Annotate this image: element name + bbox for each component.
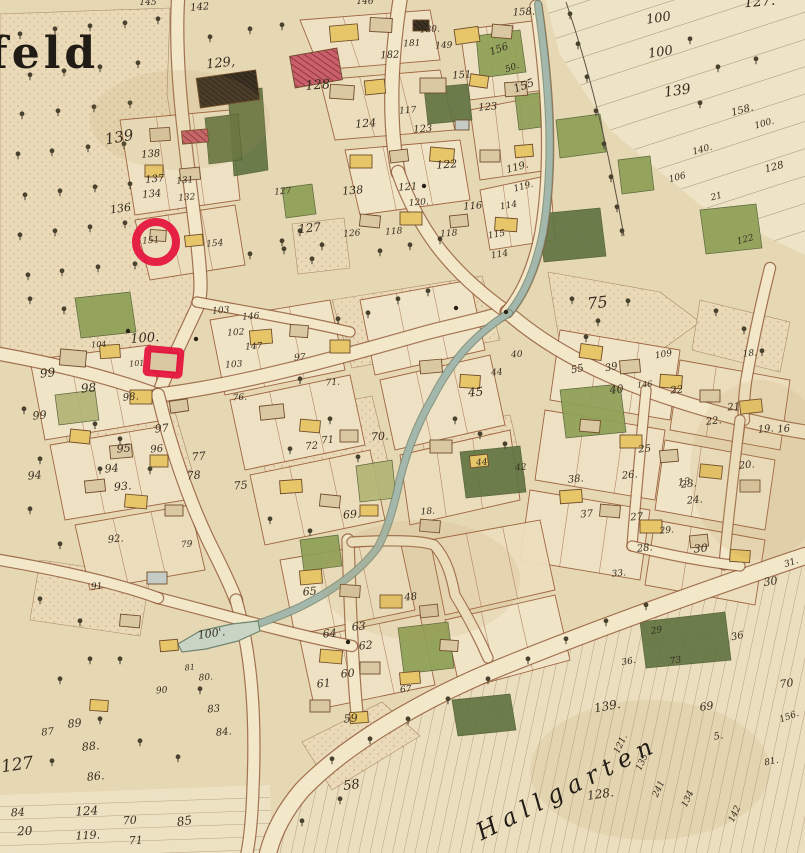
- tree-crown: [310, 256, 315, 261]
- building: [299, 569, 322, 585]
- building: [59, 349, 86, 367]
- parcel-number-label: 103: [212, 305, 230, 316]
- tree-crown: [58, 676, 63, 681]
- tree-crown: [60, 268, 65, 273]
- parcel-number-label: 118: [440, 228, 458, 239]
- building: [290, 324, 309, 337]
- tree-crown: [446, 696, 451, 701]
- tree-crown: [716, 64, 721, 69]
- tree-crown: [615, 204, 620, 209]
- tree-crown: [585, 74, 590, 79]
- parcel-number-label: 92.: [107, 533, 124, 545]
- parcel-number-label: 146: [637, 379, 653, 389]
- parcel-number-label: 123: [478, 101, 498, 113]
- building: [330, 340, 350, 353]
- parcel-number-label: 99: [32, 408, 47, 422]
- building: [455, 120, 469, 130]
- parcel-number-label: 59: [343, 711, 358, 725]
- parcel-number-label: 151: [452, 69, 472, 81]
- tree-crown: [288, 446, 293, 451]
- tree-crown: [526, 656, 531, 661]
- building: [160, 639, 179, 652]
- parcel-number-label: 71: [321, 434, 335, 446]
- tree-crown: [320, 242, 325, 247]
- tree-crown: [688, 36, 693, 41]
- tree-crown: [16, 151, 21, 156]
- garden-plot: [356, 460, 396, 502]
- paper-stain: [90, 70, 270, 170]
- parcel-number-label: 64: [322, 626, 337, 640]
- tree-crown: [138, 738, 143, 743]
- tree-crown: [298, 376, 303, 381]
- tree-crown: [453, 416, 458, 421]
- tree-crown: [644, 602, 649, 607]
- building: [579, 344, 603, 361]
- tree-crown: [148, 466, 153, 471]
- tree-crown: [88, 224, 93, 229]
- parcel-number-label: 58: [342, 777, 360, 794]
- parcel-number-label: 70: [779, 676, 795, 691]
- parcel-number-label: 182: [380, 50, 400, 62]
- parcel-number-label: 124: [75, 803, 99, 818]
- parcel-number-label: 138: [342, 183, 364, 198]
- parcel-number-label: 65: [302, 584, 317, 598]
- building: [360, 505, 378, 516]
- building: [454, 26, 480, 44]
- parcel-number-label: 122: [436, 157, 458, 171]
- parcel-number-label: 62: [358, 638, 373, 652]
- parcel-number-label: 23.: [679, 478, 697, 490]
- historic-cadastral-map: 142145146129,128139138137134136131132151…: [0, 0, 805, 853]
- tree-crown: [609, 174, 614, 179]
- parcel-number-label: 94: [27, 468, 42, 482]
- tree-crown: [564, 636, 569, 641]
- building: [389, 149, 408, 163]
- parcel-number-label: 22: [669, 384, 684, 396]
- parcel-number-label: 25: [637, 443, 652, 455]
- parcel-number-label: 69.: [343, 507, 361, 521]
- tree-crown: [330, 756, 335, 761]
- building: [515, 144, 534, 158]
- parcel-number-label: 99: [39, 365, 56, 381]
- parcel-number-label: 19.: [757, 423, 774, 435]
- boundary-dot: [504, 310, 508, 314]
- tree-crown: [198, 686, 203, 691]
- building: [400, 212, 422, 225]
- tree-crown: [26, 272, 31, 277]
- tree-crown: [208, 34, 213, 39]
- tree-crown: [570, 296, 575, 301]
- parcel-number-label: 121: [398, 181, 418, 193]
- building: [370, 17, 393, 32]
- tree-crown: [576, 41, 581, 46]
- parcel-number-label: 134: [142, 188, 162, 201]
- parcel-number-label: 98.: [122, 391, 139, 403]
- parcel-number-label: 40: [510, 350, 523, 361]
- tree-crown: [128, 181, 133, 186]
- parcel-number-label: 42: [514, 463, 527, 474]
- parcel-number-label: 26.: [620, 469, 638, 481]
- building: [120, 614, 141, 628]
- parcel-number-label: 81: [184, 663, 195, 673]
- tree-crown: [280, 238, 285, 243]
- garden-plot: [55, 390, 99, 425]
- building: [150, 455, 168, 467]
- building: [259, 404, 284, 420]
- tree-crown: [123, 220, 128, 225]
- building: [147, 572, 167, 584]
- tree-crown: [366, 310, 371, 315]
- parcel-number-label: 147: [245, 341, 263, 352]
- parcel-number-label: 28.: [635, 542, 653, 554]
- parcel-number-label: 18.: [742, 348, 757, 359]
- parcel-number-label: 80.: [198, 672, 213, 683]
- tree-crown: [328, 416, 333, 421]
- tree-crown: [86, 144, 91, 149]
- building: [330, 84, 355, 100]
- tree-crown: [96, 264, 101, 269]
- tree-crown: [248, 26, 253, 31]
- building: [420, 78, 446, 93]
- tree-crown: [620, 228, 625, 233]
- garden-plot: [452, 694, 516, 736]
- tree-crown: [602, 141, 607, 146]
- parcel-number-label: 48: [403, 591, 418, 603]
- parcel-number-label: 149: [435, 41, 453, 52]
- tree-crown: [98, 716, 103, 721]
- tree-crown: [596, 318, 601, 323]
- tree-crown: [28, 506, 33, 511]
- parcel-number-label: 117: [399, 105, 417, 116]
- tree-crown: [503, 441, 508, 446]
- parcel-number-label: 104: [91, 339, 107, 349]
- tree-crown: [23, 192, 28, 197]
- parcel-number-label: 63: [351, 619, 366, 633]
- tree-crown: [408, 242, 413, 247]
- parcel-number-label: 158.: [512, 6, 535, 18]
- boundary-dot: [454, 306, 458, 310]
- boundary-dot: [346, 640, 350, 644]
- parcel-number-label: 67: [400, 685, 413, 696]
- tree-crown: [38, 456, 43, 461]
- parcel-number-label: 146: [242, 311, 260, 322]
- tree-crown: [53, 228, 58, 233]
- tree-crown: [308, 528, 313, 533]
- parcel-number-label: 30: [763, 574, 779, 589]
- tree-crown: [604, 618, 609, 623]
- paper-stain: [320, 520, 520, 640]
- tree-crown: [18, 232, 23, 237]
- tree-crown: [300, 818, 305, 823]
- parcel-number-label: 84: [10, 806, 25, 820]
- building: [124, 494, 147, 509]
- tree-crown: [698, 100, 703, 105]
- tree-crown: [98, 466, 103, 471]
- parcel-number-label: 79: [181, 540, 194, 551]
- tree-crown: [156, 16, 161, 21]
- building: [350, 155, 372, 168]
- parcel-number-label: 124: [355, 116, 377, 131]
- building: [419, 359, 442, 374]
- tree-crown: [568, 11, 573, 16]
- building: [364, 79, 385, 95]
- parcel-number-label: 151: [142, 235, 160, 246]
- tree-crown: [248, 251, 253, 256]
- building: [319, 494, 340, 508]
- tree-crown: [50, 148, 55, 153]
- parcel-number-label: 90: [156, 686, 169, 697]
- parcel-number-label: 181: [403, 39, 421, 50]
- tree-crown: [486, 676, 491, 681]
- parcel-number-label: 98: [80, 380, 97, 396]
- building: [440, 639, 459, 651]
- parcel-number-label: 137: [145, 173, 166, 186]
- tree-crown: [282, 246, 287, 251]
- parcel-number-label: 70: [122, 814, 137, 828]
- tree-crown: [118, 656, 123, 661]
- tree-crown: [20, 111, 25, 116]
- tree-crown: [50, 758, 55, 763]
- parcel-number-label: 97: [294, 353, 306, 364]
- building: [359, 214, 380, 228]
- parcel-number-label: 72: [305, 440, 319, 452]
- parcel-number-label: 16: [777, 423, 791, 435]
- parcel-number-label: 69: [699, 699, 715, 714]
- parcel-number-label: 132: [178, 192, 196, 203]
- garden-plot: [618, 156, 654, 194]
- tree-crown: [478, 431, 483, 436]
- building: [165, 505, 183, 516]
- parcel-number-label: 91: [91, 582, 103, 593]
- tree-crown: [280, 22, 285, 27]
- parcel-number-label: 70.: [371, 429, 389, 443]
- parcel-number-label: 77: [191, 449, 206, 463]
- tree-crown: [584, 334, 589, 339]
- tree-crown: [336, 316, 341, 321]
- parcel-number-label: 138: [141, 148, 161, 161]
- tree-crown: [123, 20, 128, 25]
- parcel-number-label: 126: [343, 228, 361, 239]
- garden-plot: [700, 204, 762, 254]
- building: [319, 649, 342, 664]
- tree-crown: [28, 296, 33, 301]
- parcel-number-label: 146: [356, 0, 373, 7]
- parcel-number-label: 123: [413, 123, 433, 135]
- tree-crown: [176, 754, 181, 759]
- parcel-number-label: 75: [233, 478, 248, 492]
- parcel-number-label: 20: [16, 824, 33, 839]
- parcel-number-label: 93.: [113, 479, 132, 493]
- tree-crown: [368, 736, 373, 741]
- parcel-number-label: 128: [305, 77, 331, 94]
- building: [430, 440, 452, 453]
- building: [69, 429, 90, 444]
- parcel-number-label: 145: [139, 0, 156, 8]
- tree-crown: [78, 618, 83, 623]
- tree-crown: [594, 108, 599, 113]
- tree-crown: [406, 716, 411, 721]
- parcel-number-label: 71: [128, 834, 143, 848]
- building: [400, 671, 421, 685]
- building: [169, 399, 188, 413]
- parcel-number-label: 37: [580, 508, 594, 520]
- garden-plot: [556, 114, 606, 158]
- boundary-dot: [422, 184, 426, 188]
- tree-crown: [38, 596, 43, 601]
- parcel-number-label: 24.: [685, 494, 703, 506]
- building: [660, 449, 679, 463]
- parcel-number-label: 27: [629, 511, 644, 523]
- tree-crown: [426, 288, 431, 293]
- parcel-number-label: 40: [608, 382, 624, 396]
- tree-crown: [338, 796, 343, 801]
- building: [619, 359, 640, 374]
- building: [340, 430, 358, 442]
- parcel-number-label: 85: [176, 813, 193, 829]
- parcel-number-label: 100.: [130, 330, 160, 347]
- tree-crown: [88, 656, 93, 661]
- tree-crown: [22, 406, 27, 411]
- parcel-number-label: 96: [150, 443, 164, 455]
- building: [90, 699, 109, 711]
- building: [580, 419, 601, 433]
- tree-crown: [58, 188, 63, 193]
- building: [84, 479, 105, 493]
- parcel-number-label: 78: [186, 468, 201, 482]
- building: [184, 234, 203, 247]
- parcel-number-label: 131: [176, 175, 194, 186]
- parcel-number-label: 86.: [86, 769, 105, 784]
- tree-crown: [626, 298, 631, 303]
- tree-crown: [760, 348, 765, 353]
- building: [310, 700, 330, 712]
- tree-crown: [714, 308, 719, 313]
- parcel-number-label: 87: [41, 726, 55, 738]
- building: [280, 479, 303, 494]
- map-viewport: 142145146129,128139138137134136131132151…: [0, 0, 805, 853]
- parcel-number-label: 30: [693, 541, 708, 555]
- parcel-number-label: 60: [340, 666, 355, 680]
- parcel-number-label: 97: [154, 421, 169, 435]
- tree-crown: [93, 421, 98, 426]
- parcel-number-label: 75: [586, 292, 608, 313]
- parcel-number-label: 33.: [611, 568, 626, 579]
- tree-crown: [754, 56, 759, 61]
- tree-crown: [356, 454, 361, 459]
- parcel-number-label: 76.: [232, 393, 247, 404]
- place-name-label: feld: [0, 28, 99, 79]
- parcel-number-label: 103: [225, 359, 243, 370]
- tree-crown: [93, 184, 98, 189]
- tree-crown: [378, 248, 383, 253]
- tree-crown: [396, 296, 401, 301]
- building: [560, 489, 583, 504]
- garden-plot: [640, 612, 731, 668]
- parcel-number-label: 71.: [325, 378, 340, 389]
- parcel-number-label: 102: [227, 327, 245, 338]
- parcel-number-label: 180.: [420, 24, 441, 35]
- tree-crown: [136, 60, 141, 65]
- building: [600, 504, 621, 518]
- parcel-number-label: 29.: [658, 525, 674, 536]
- tree-crown: [133, 261, 138, 266]
- parcel-number-label: 73: [669, 655, 682, 667]
- tree-crown: [56, 108, 61, 113]
- tree-crown: [58, 541, 63, 546]
- building: [300, 419, 321, 433]
- parcel-number-label: 127: [274, 186, 292, 197]
- parcel-number-label: 20.: [737, 459, 755, 471]
- parcel-number-label: 84.: [215, 726, 232, 738]
- building: [329, 24, 358, 42]
- building: [491, 24, 512, 39]
- building: [360, 662, 380, 674]
- parcel-number-label: 45: [466, 384, 483, 399]
- tree-crown: [62, 306, 67, 311]
- building: [449, 214, 468, 228]
- building: [469, 74, 488, 88]
- parcel-number-label: 119.: [75, 828, 100, 842]
- parcel-number-label: 120.: [409, 197, 430, 208]
- parcel-number-label: 154: [206, 238, 224, 249]
- tree-crown: [268, 516, 273, 521]
- building: [480, 150, 500, 162]
- parcel-number-label: 88.: [81, 739, 100, 754]
- parcel-number-label: 18.: [420, 507, 435, 518]
- tree-crown: [118, 436, 123, 441]
- parcel-number-label: 61: [316, 676, 331, 690]
- parcel-number-label: 83: [207, 703, 221, 715]
- parcel-number-label: 5.: [713, 730, 724, 742]
- parcel-number-label: 89: [67, 716, 82, 730]
- parcel-number-label: 44: [490, 368, 503, 379]
- parcel-number-label: 101: [129, 358, 145, 368]
- parcel-number-label: 142: [190, 1, 210, 14]
- tree-crown: [742, 326, 747, 331]
- parcel-number-label: 94: [104, 461, 119, 475]
- parcel-number-label: 21: [726, 401, 741, 413]
- parcel-number-label: 22.: [704, 415, 722, 427]
- parcel-number-label: 44: [475, 458, 488, 469]
- parcel-number-label: 129,: [205, 55, 235, 73]
- parcel-number-label: 116: [463, 200, 483, 212]
- parcel-number-label: 38.: [567, 473, 584, 485]
- boundary-dot: [194, 337, 198, 341]
- parcel-number-label: 118: [385, 226, 403, 237]
- parcel-number-label: 127: [297, 220, 322, 236]
- parcel-number-label: 95: [116, 441, 131, 455]
